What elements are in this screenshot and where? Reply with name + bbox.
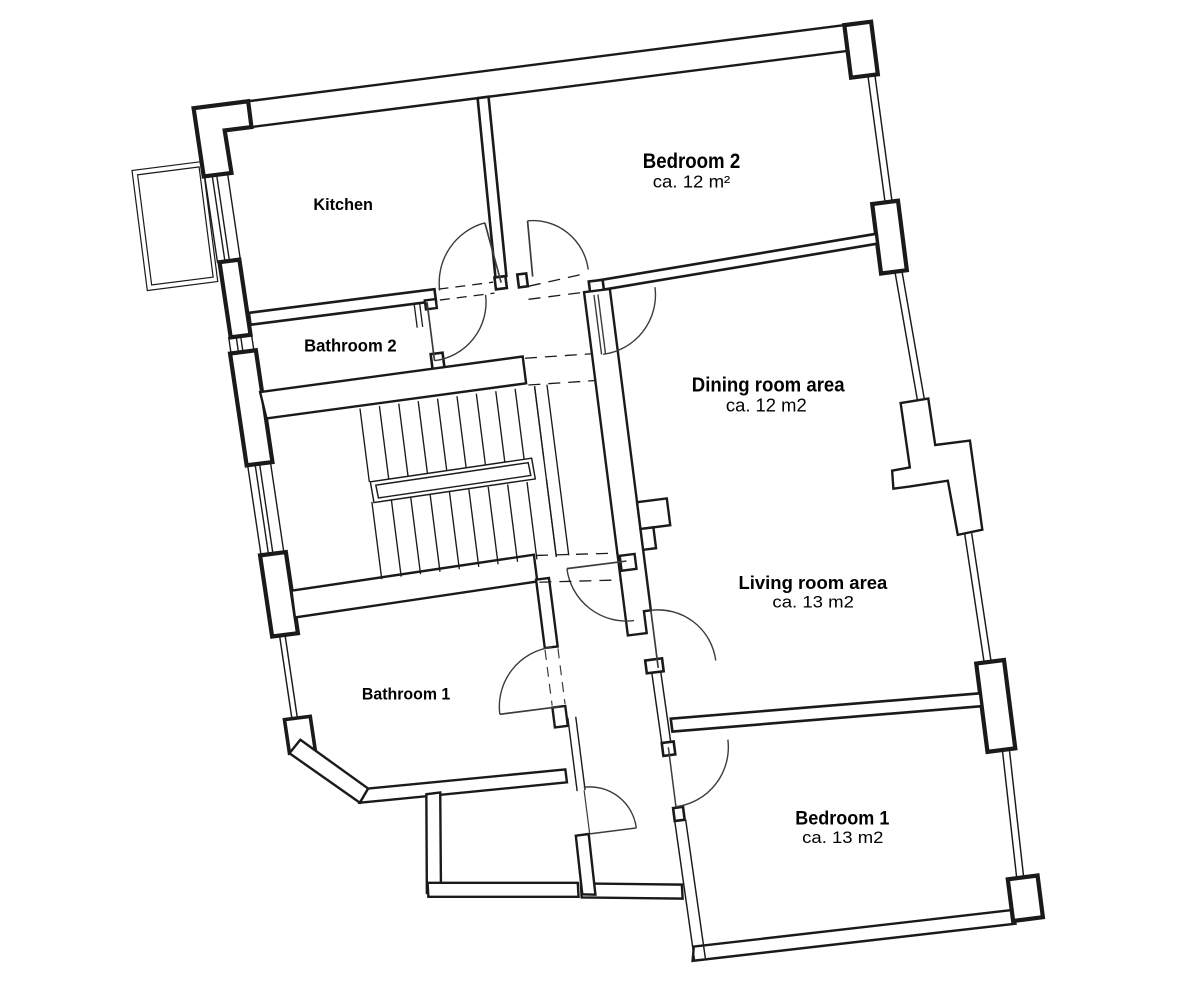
svg-text:ca. 12 m2: ca. 12 m2	[726, 396, 807, 416]
svg-text:Kitchen: Kitchen	[313, 196, 373, 214]
svg-text:ca. 13 m2: ca. 13 m2	[772, 593, 854, 612]
svg-text:Bathroom 1: Bathroom 1	[362, 685, 450, 703]
svg-text:Bedroom 2: Bedroom 2	[643, 150, 740, 173]
svg-text:Living room area: Living room area	[739, 572, 888, 593]
svg-text:ca. 12 m²: ca. 12 m²	[653, 172, 731, 191]
svg-text:ca. 13 m2: ca. 13 m2	[802, 828, 883, 847]
svg-text:Bedroom 1: Bedroom 1	[795, 807, 889, 829]
svg-text:Bathroom 2: Bathroom 2	[304, 336, 397, 356]
svg-text:Dining room area: Dining room area	[692, 375, 845, 397]
